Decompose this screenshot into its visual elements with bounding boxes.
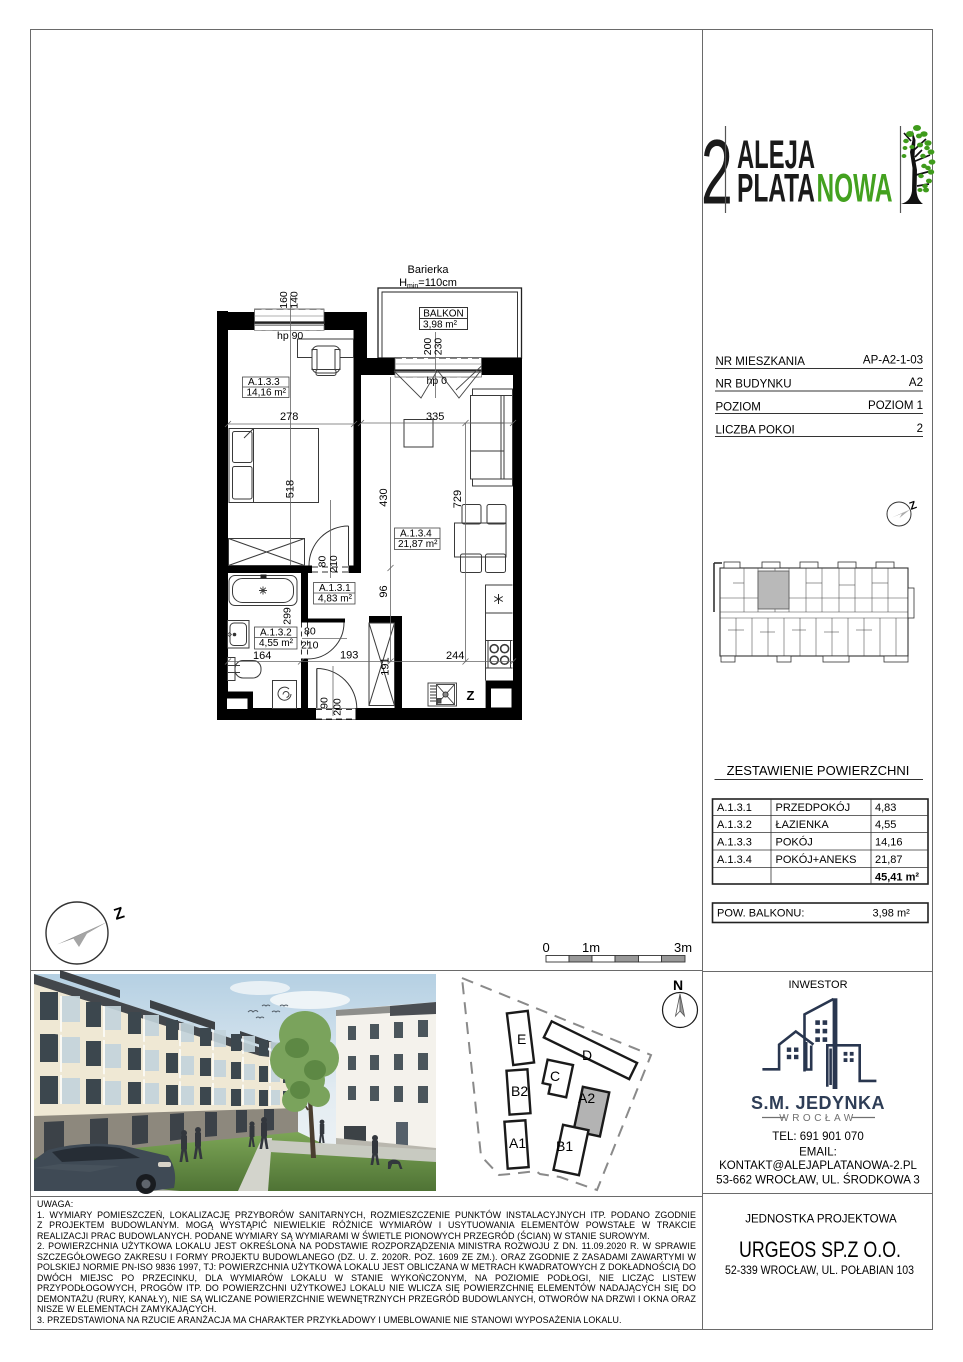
- svg-text:1m: 1m: [582, 940, 600, 955]
- svg-text:NOWA: NOWA: [817, 167, 893, 211]
- svg-text:210: 210: [301, 640, 319, 652]
- svg-text:14,16 m²: 14,16 m²: [247, 388, 287, 399]
- svg-text:Barierka: Barierka: [408, 264, 450, 276]
- svg-text:KONTAKT@ALEJAPLATANOWA-2.PL: KONTAKT@ALEJAPLATANOWA-2.PL: [719, 1160, 917, 1172]
- svg-text:3,98 m²: 3,98 m²: [423, 320, 458, 331]
- svg-text:hp 0: hp 0: [427, 375, 448, 387]
- svg-text:A.1.3.3: A.1.3.3: [717, 837, 752, 849]
- svg-text:2: 2: [917, 423, 923, 435]
- svg-text:80: 80: [304, 626, 316, 638]
- svg-text:518: 518: [285, 480, 297, 498]
- svg-text:96: 96: [378, 585, 390, 597]
- svg-text:A.1.3.1: A.1.3.1: [717, 802, 752, 814]
- svg-text:JEDNOSTKA PROJEKTOWA: JEDNOSTKA PROJEKTOWA: [745, 1214, 897, 1226]
- svg-text:Z: Z: [908, 499, 919, 513]
- svg-text:278: 278: [280, 411, 298, 423]
- svg-text:INWESTOR: INWESTOR: [788, 979, 847, 991]
- svg-text:C: C: [550, 1068, 560, 1084]
- svg-text:NR BUDYNKU: NR BUDYNKU: [716, 379, 792, 391]
- svg-text:90: 90: [319, 697, 331, 709]
- svg-text:A.1.3.4: A.1.3.4: [717, 854, 752, 866]
- svg-text:TEL: 691 901 070: TEL: 691 901 070: [772, 1131, 863, 1143]
- svg-text:D: D: [582, 1047, 592, 1063]
- svg-text:52-339 WROCŁAW, UL. POŁABIAN 1: 52-339 WROCŁAW, UL. POŁABIAN 103: [725, 1265, 914, 1277]
- svg-text:AP-A2-1-03: AP-A2-1-03: [863, 355, 923, 367]
- svg-text:244: 244: [446, 650, 464, 662]
- svg-text:NR MIESZKANIA: NR MIESZKANIA: [716, 356, 806, 368]
- svg-text:53-662 WROCŁAW, UL. ŚRODKOWA 3: 53-662 WROCŁAW, UL. ŚRODKOWA 3: [716, 1174, 920, 1187]
- svg-text:PLATA: PLATA: [737, 167, 815, 211]
- svg-text:21,87 m²: 21,87 m²: [398, 539, 438, 550]
- svg-text:193: 193: [340, 650, 358, 662]
- svg-text:POKÓJ+ANEKS: POKÓJ+ANEKS: [776, 853, 857, 866]
- svg-text:430: 430: [378, 488, 390, 506]
- svg-text:4,83 m²: 4,83 m²: [318, 594, 353, 605]
- svg-text:3,98 m²: 3,98 m²: [873, 908, 911, 920]
- svg-text:140: 140: [289, 291, 301, 309]
- svg-text:4,55 m²: 4,55 m²: [259, 638, 294, 649]
- svg-text:Z: Z: [112, 905, 127, 924]
- svg-text:4,83: 4,83: [875, 802, 896, 814]
- svg-text:A1: A1: [509, 1135, 526, 1151]
- svg-text:hp 90: hp 90: [277, 330, 303, 342]
- svg-text:POZIOM: POZIOM: [716, 402, 761, 414]
- svg-text:A2: A2: [578, 1090, 595, 1106]
- svg-text:A.1.3.4: A.1.3.4: [400, 529, 432, 540]
- svg-text:EMAIL:: EMAIL:: [799, 1147, 837, 1159]
- svg-text:A.1.3.2: A.1.3.2: [717, 819, 752, 831]
- svg-text:Hmin=110cm: Hmin=110cm: [399, 277, 457, 290]
- svg-text:4,55: 4,55: [875, 819, 896, 831]
- svg-text:A.1.3.3: A.1.3.3: [248, 377, 280, 388]
- svg-text:164: 164: [253, 650, 271, 662]
- svg-text:2: 2: [701, 122, 733, 224]
- svg-text:A.1.3.1: A.1.3.1: [319, 583, 351, 594]
- svg-text:ŁAZIENKA: ŁAZIENKA: [776, 819, 830, 831]
- svg-text:WROCŁAW: WROCŁAW: [779, 1113, 856, 1124]
- svg-text:ZESTAWIENIE POWIERZCHNI: ZESTAWIENIE POWIERZCHNI: [727, 763, 910, 778]
- svg-text:POKÓJ: POKÓJ: [776, 836, 813, 849]
- svg-text:14,16: 14,16: [875, 837, 903, 849]
- svg-text:0: 0: [543, 940, 550, 955]
- svg-text:LICZBA POKOI: LICZBA POKOI: [716, 425, 795, 437]
- svg-text:335: 335: [426, 411, 444, 423]
- svg-text:B2: B2: [511, 1083, 528, 1099]
- svg-text:191: 191: [380, 657, 392, 675]
- svg-text:80: 80: [317, 556, 329, 568]
- svg-text:N: N: [673, 977, 683, 993]
- svg-text:45,41 m²: 45,41 m²: [875, 872, 919, 884]
- svg-text:230: 230: [433, 338, 445, 356]
- svg-text:URGEOS SP.Z O.O.: URGEOS SP.Z O.O.: [739, 1237, 901, 1262]
- svg-text:PRZEDPOKÓJ: PRZEDPOKÓJ: [776, 801, 851, 814]
- svg-text:210: 210: [328, 555, 340, 573]
- svg-text:E: E: [517, 1031, 526, 1047]
- svg-text:Z: Z: [467, 688, 475, 703]
- svg-text:BALKON: BALKON: [423, 309, 464, 320]
- svg-text:299: 299: [282, 607, 294, 625]
- svg-text:POZIOM 1: POZIOM 1: [868, 400, 923, 412]
- svg-text:729: 729: [452, 490, 464, 508]
- svg-text:200: 200: [332, 698, 344, 716]
- svg-text:21,87: 21,87: [875, 854, 903, 866]
- svg-text:A2: A2: [909, 377, 923, 389]
- svg-text:B1: B1: [556, 1138, 573, 1154]
- svg-text:S.M. JEDYNKA: S.M. JEDYNKA: [751, 1093, 885, 1113]
- svg-text:POW. BALKONU:: POW. BALKONU:: [717, 908, 804, 920]
- svg-text:A.1.3.2: A.1.3.2: [260, 628, 292, 639]
- svg-text:3m: 3m: [674, 940, 692, 955]
